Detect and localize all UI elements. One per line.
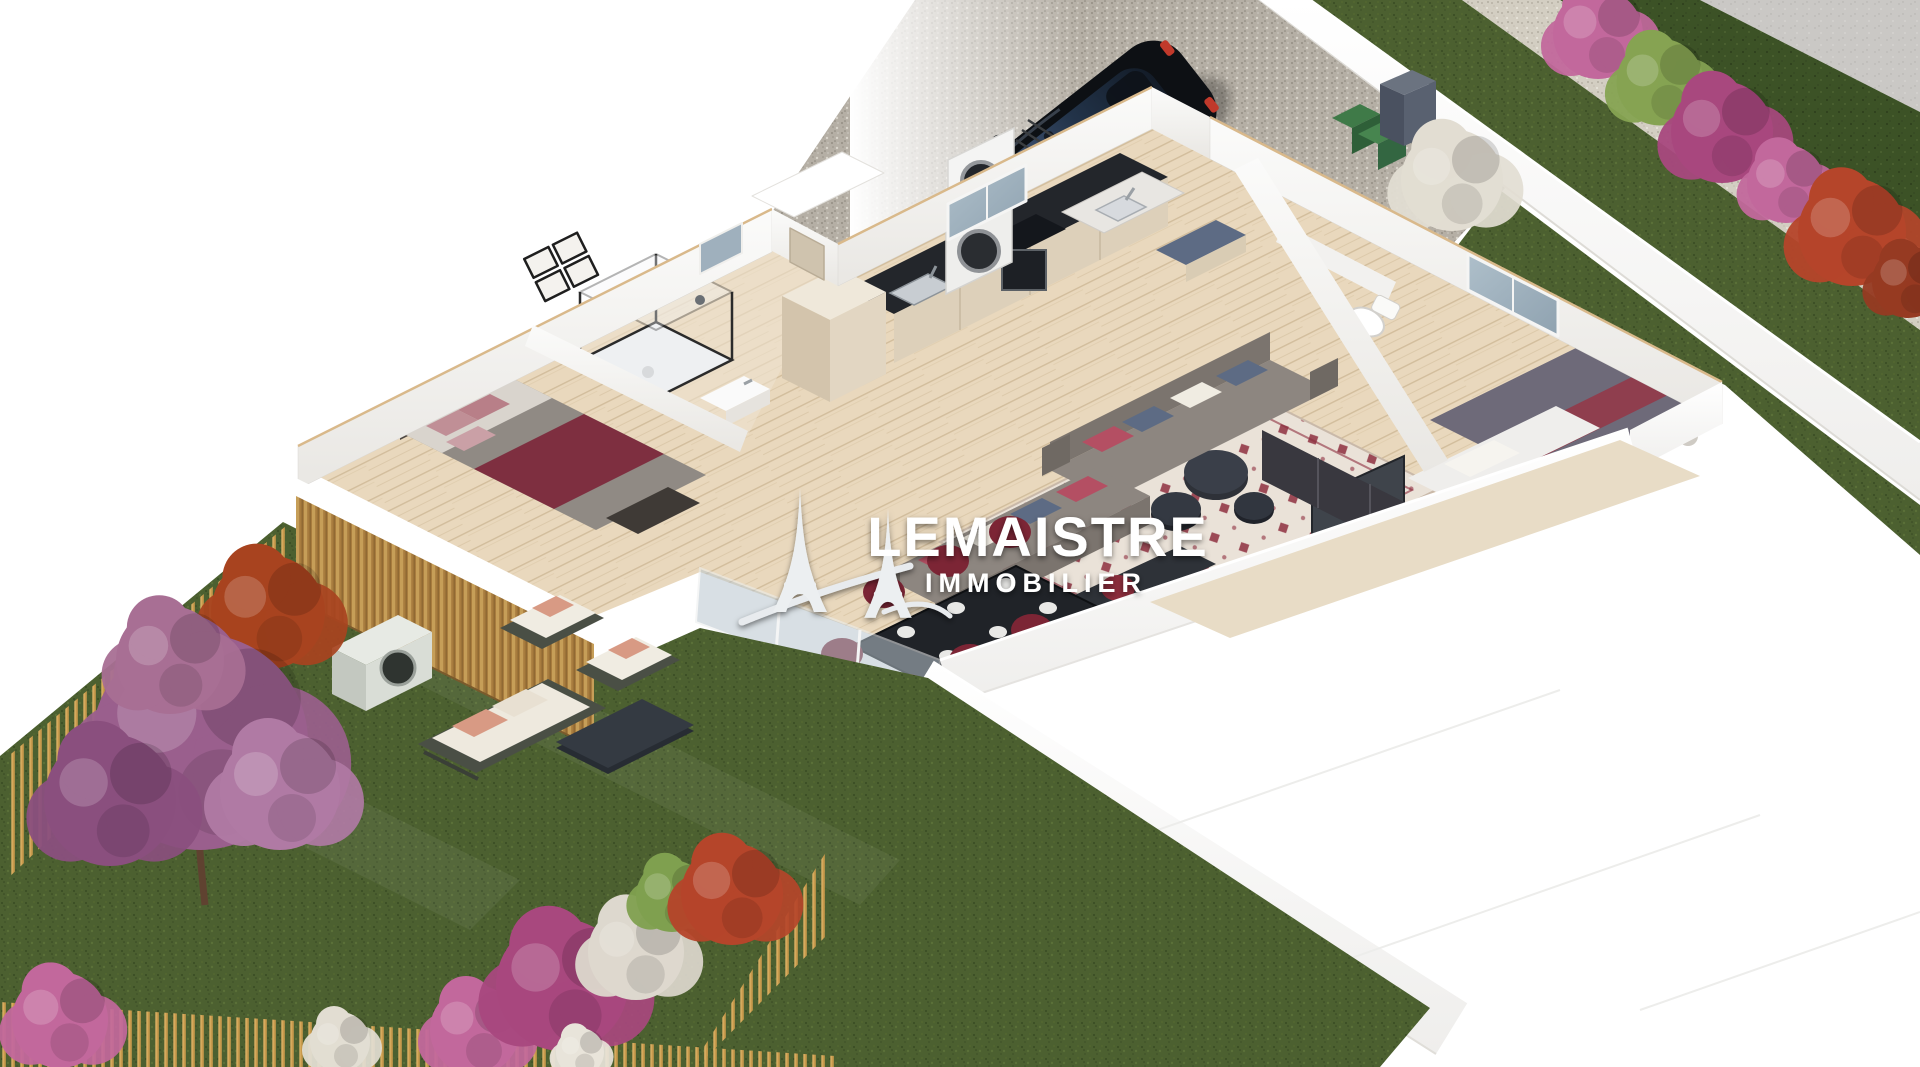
floorplan-render-page: LEMAISTRE IMMOBILIER [0,0,1920,1067]
watermark-tagline: IMMOBILIER [925,568,1147,598]
watermark-brand: LEMAISTRE [867,505,1209,568]
floorplan-scene: LEMAISTRE IMMOBILIER [0,0,1920,1067]
